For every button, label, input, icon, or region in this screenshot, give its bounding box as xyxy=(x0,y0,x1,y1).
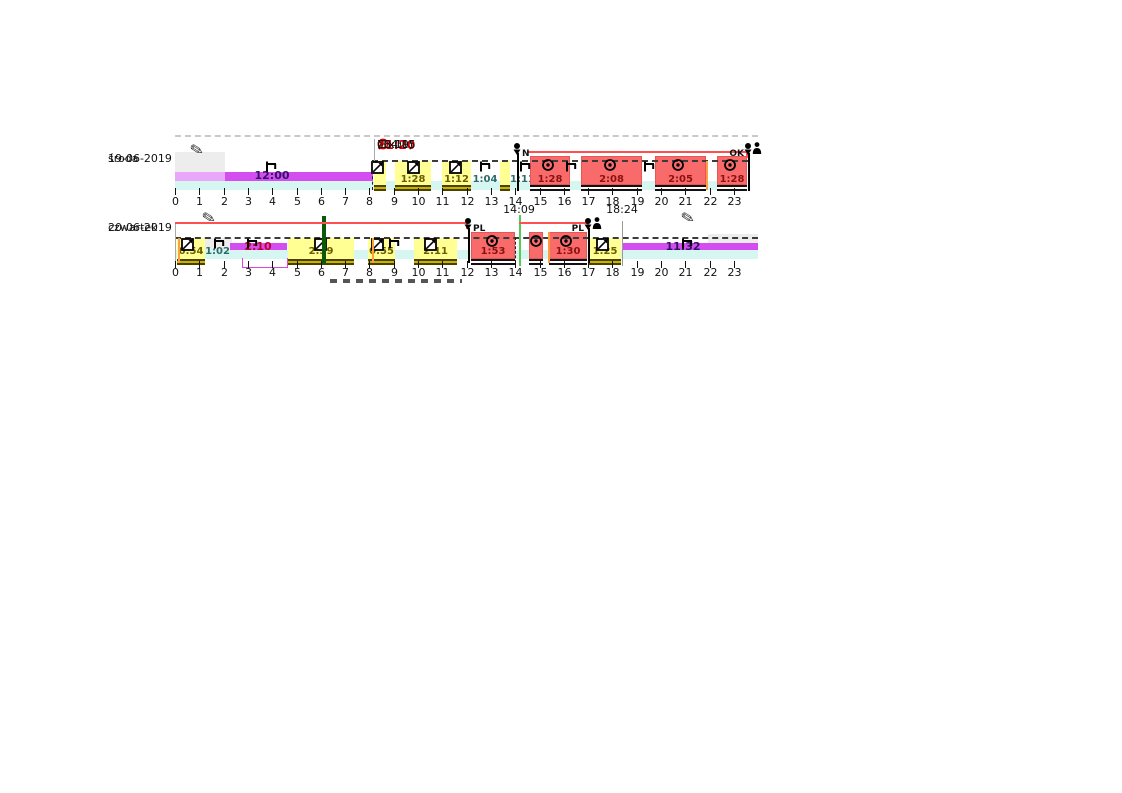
hour-label: 22 xyxy=(700,196,721,208)
event-vline xyxy=(372,238,374,263)
work-duration-label: 1:28 xyxy=(395,174,431,186)
hour-label: 14 xyxy=(505,267,526,279)
hour-tick xyxy=(199,188,200,195)
event-vline xyxy=(706,161,708,190)
hour-label: 10 xyxy=(408,196,429,208)
event-vline xyxy=(178,238,180,263)
rest-activity-icon xyxy=(565,161,578,175)
hour-tick xyxy=(369,188,370,195)
day-date: 20-06-2019 xyxy=(108,219,172,236)
work-trace xyxy=(500,185,510,191)
driver-person-icon xyxy=(752,142,762,154)
work-duration-label: 1:12 xyxy=(442,174,471,186)
card-marker-line xyxy=(468,228,470,263)
time-of-day-label: 18:24 xyxy=(601,204,643,216)
hour-label: 4 xyxy=(262,267,283,279)
dashed-guide-line xyxy=(175,237,758,239)
hour-label: 20 xyxy=(651,267,672,279)
hour-tick xyxy=(394,188,395,195)
hour-tick xyxy=(588,188,589,195)
hour-label: 5 xyxy=(287,267,308,279)
hour-tick xyxy=(224,188,225,195)
hour-tick xyxy=(637,188,638,195)
hour-label: 21 xyxy=(675,196,696,208)
rest-activity-icon xyxy=(479,161,492,175)
driving-duration-label: 1:28 xyxy=(530,174,570,186)
rest-activity-icon xyxy=(681,238,694,252)
hour-label: 7 xyxy=(335,196,356,208)
card-marker-country: OK xyxy=(724,149,744,159)
hour-tick xyxy=(418,188,419,195)
drive-activity-icon xyxy=(603,158,617,172)
hour-label: 23 xyxy=(724,267,745,279)
card-marker-line xyxy=(588,228,590,263)
hour-label: 9 xyxy=(384,267,405,279)
weekly-total: Σ34:15 xyxy=(377,138,416,151)
violation-overline xyxy=(527,151,748,153)
hour-label: 23 xyxy=(724,196,745,208)
hour-label: 1 xyxy=(189,267,210,279)
driving-duration-label: 2:05 xyxy=(655,174,706,186)
work-activity-icon xyxy=(596,238,609,252)
hour-label: 5 xyxy=(287,196,308,208)
hour-tick xyxy=(175,188,176,195)
work-block[interactable] xyxy=(500,161,510,185)
hour-label: 8 xyxy=(359,267,380,279)
drive-activity-icon xyxy=(671,158,685,172)
hour-label: 18 xyxy=(602,267,623,279)
hour-label: 20 xyxy=(651,196,672,208)
hour-label: 2 xyxy=(214,196,235,208)
pencil-edit-icon[interactable]: ✎ xyxy=(189,141,208,160)
hour-label: 17 xyxy=(578,267,599,279)
dashed-guide-line xyxy=(372,160,748,162)
hour-tick xyxy=(515,188,516,195)
rest-activity-icon xyxy=(265,161,278,175)
hour-tick xyxy=(491,188,492,195)
hour-label: 15 xyxy=(530,267,551,279)
time-of-day-label: 14:09 xyxy=(498,204,540,216)
event-vline xyxy=(622,221,623,266)
drive-activity-icon xyxy=(529,234,543,248)
hour-tick xyxy=(685,188,686,195)
card-marker-country: PL xyxy=(564,224,584,234)
hour-label: 7 xyxy=(335,267,356,279)
driving-duration-label: 2:08 xyxy=(581,174,642,186)
hour-tick xyxy=(467,188,468,195)
hour-label: 19 xyxy=(627,267,648,279)
rest-bar-light-overlay xyxy=(175,172,225,181)
hour-label: 9 xyxy=(384,196,405,208)
tachograph-timeline-canvas: środa 19-06-2019 08:09 11:20 (1x10) Σ34:… xyxy=(0,0,1122,793)
hour-label: 8 xyxy=(359,196,380,208)
event-vline xyxy=(548,232,550,263)
drive-activity-icon xyxy=(723,158,737,172)
hour-label: 22 xyxy=(700,267,721,279)
hour-label: 16 xyxy=(554,267,575,279)
hour-label: 0 xyxy=(165,196,186,208)
card-marker-line xyxy=(748,153,750,191)
hour-label: 3 xyxy=(238,267,259,279)
day-date: 19-06-2019 xyxy=(108,150,172,167)
hour-tick xyxy=(248,188,249,195)
hour-tick xyxy=(710,188,711,195)
hour-label: 12 xyxy=(457,267,478,279)
event-vline xyxy=(515,237,516,263)
hour-label: 11 xyxy=(432,196,453,208)
hour-label: 6 xyxy=(311,196,332,208)
rest-activity-icon xyxy=(213,238,226,252)
hour-label: 2 xyxy=(214,267,235,279)
work-trace xyxy=(589,259,621,265)
pencil-edit-icon[interactable]: ✎ xyxy=(201,209,220,228)
work-trace xyxy=(374,185,386,191)
work-activity-icon xyxy=(181,238,194,252)
break-duration-label: 1:04 xyxy=(471,174,499,186)
hour-tick xyxy=(297,188,298,195)
rest-activity-icon xyxy=(643,161,656,175)
clipped-previous-row-dashes xyxy=(175,135,758,137)
hour-label: 10 xyxy=(408,267,429,279)
hour-tick xyxy=(345,188,346,195)
event-vline xyxy=(372,160,373,190)
hour-label: 16 xyxy=(554,196,575,208)
clipped-next-row-header xyxy=(330,279,462,283)
hour-label: 6 xyxy=(311,267,332,279)
hour-label: 17 xyxy=(578,196,599,208)
card-marker-line xyxy=(517,153,519,191)
card-marker-country: PL xyxy=(473,224,493,234)
card-marker-country: N xyxy=(522,149,542,159)
hour-label: 0 xyxy=(165,267,186,279)
hour-label: 4 xyxy=(262,196,283,208)
hour-label: 11 xyxy=(432,267,453,279)
pencil-edit-icon[interactable]: ✎ xyxy=(680,209,699,228)
rest-activity-icon xyxy=(388,238,401,252)
hour-tick xyxy=(661,188,662,195)
work-trace xyxy=(177,259,205,265)
work-activity-icon xyxy=(407,161,420,175)
drive-activity-icon xyxy=(541,158,555,172)
work-trace xyxy=(414,259,457,265)
drive-activity-icon xyxy=(559,234,573,248)
hour-label: 1 xyxy=(189,196,210,208)
rest-activity-icon xyxy=(246,238,259,252)
driving-trace xyxy=(549,259,587,265)
hour-label: 13 xyxy=(481,267,502,279)
driving-duration-label: 1:28 xyxy=(717,174,747,186)
rest-activity-icon xyxy=(519,161,532,175)
work-activity-icon xyxy=(449,161,462,175)
hour-tick xyxy=(442,188,443,195)
hour-label: 21 xyxy=(675,267,696,279)
hour-tick xyxy=(734,188,735,195)
hour-tick xyxy=(272,188,273,195)
drive-activity-icon xyxy=(485,234,499,248)
driver-person-icon xyxy=(592,217,602,229)
event-vline xyxy=(374,139,375,161)
work-activity-icon xyxy=(424,238,437,252)
hour-tick xyxy=(540,188,541,195)
hour-tick xyxy=(564,188,565,195)
hour-label: 3 xyxy=(238,196,259,208)
hour-tick xyxy=(612,188,613,195)
driving-trace xyxy=(471,259,515,265)
hour-tick xyxy=(321,188,322,195)
hour-label: 12 xyxy=(457,196,478,208)
